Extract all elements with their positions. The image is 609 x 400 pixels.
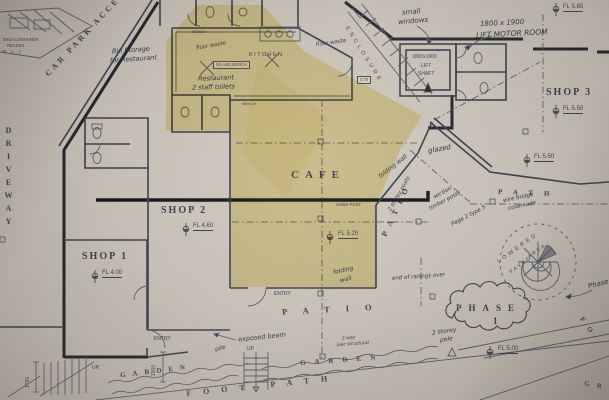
phase1-word: PHASE [456, 304, 521, 313]
bins-label-1: BINS-CONTAINER [3, 38, 39, 42]
shop1-label: SHOP 1 [82, 252, 128, 262]
cafe-label: CAFE [291, 170, 345, 181]
up-label-left: UP. [92, 366, 100, 371]
entry-label-shop1: ENTRY [154, 337, 171, 342]
shop3-label: SHOP 3 [546, 88, 592, 98]
lift-label-2: SHAFT [418, 72, 434, 77]
kitchen-label: KITCHEN [249, 53, 284, 59]
level-fl520-cafe: FL 5.20 [338, 231, 358, 239]
level-fl400-shop1: FL 4.00 [102, 270, 122, 278]
driveway-label: DRIVEWAY [4, 126, 12, 248]
note-restaurant-2: 2 staff toilets [192, 83, 235, 91]
bins-label-3: R A L [3, 50, 23, 54]
floor-plan-canvas: CAR PARK ACCESS DRIVEWAY SHOP 1 SHOP 2 S… [0, 0, 609, 400]
bench-label-bottom: BENCH [242, 102, 256, 106]
level-fl550-shop3: FL 5.50 [563, 106, 583, 114]
entry-label-patio: ENTRY [274, 292, 291, 297]
note-restaurant-1: Restaurant [198, 74, 234, 82]
bench-label-top: BENCH [192, 30, 206, 34]
lift-dim-label: 1800x1900 [412, 55, 437, 60]
level-fl585: FL 5.85 [563, 4, 583, 12]
island-bench-label: ISLAND BENCH [213, 61, 250, 69]
lift-label-1: LIFT [421, 64, 431, 69]
level-fl460-shop2: FL 4.60 [193, 223, 213, 231]
phase1-number: 1 [493, 317, 498, 326]
level-fl550-path: FL 5.50 [534, 154, 554, 162]
dim-1500: 1500 [152, 365, 157, 376]
bins-label-2: RECESS [7, 44, 24, 48]
dim-1795: 1795 [26, 377, 31, 388]
sawn-post-label: SAWN POST [336, 203, 361, 207]
level-470-tag: 4.70 [357, 76, 371, 84]
level-fl500-patio: FL 5.00 [498, 346, 518, 354]
up-label-mid: UP [247, 347, 254, 352]
shop2-label: SHOP 2 [161, 206, 207, 216]
